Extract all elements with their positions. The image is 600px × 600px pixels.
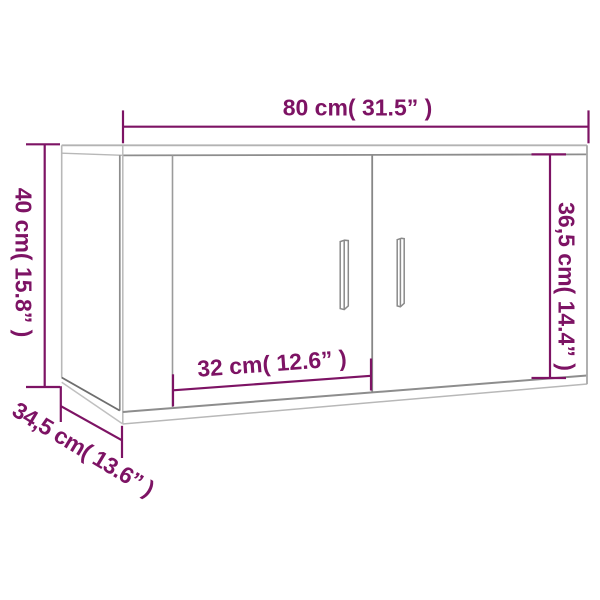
- svg-text:80 cm( 31.5” ): 80 cm( 31.5” ): [283, 95, 433, 121]
- svg-text:36,5 cm( 14.4” ): 36,5 cm( 14.4” ): [553, 202, 579, 371]
- svg-text:40 cm( 15.8” ): 40 cm( 15.8” ): [10, 188, 36, 338]
